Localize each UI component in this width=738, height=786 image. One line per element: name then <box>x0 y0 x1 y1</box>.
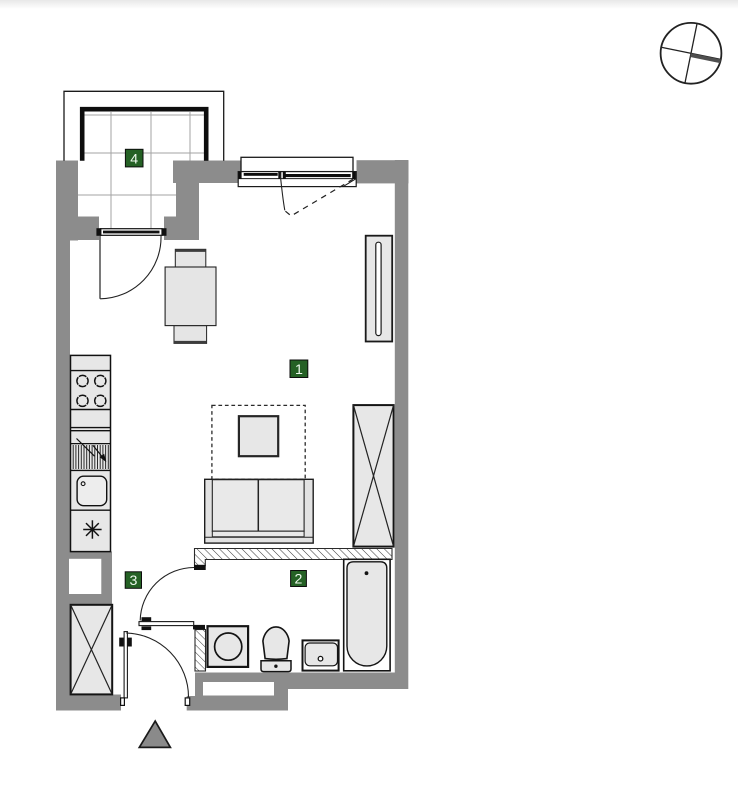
svg-text:3: 3 <box>129 573 137 589</box>
svg-text:1: 1 <box>295 362 303 378</box>
svg-text:2: 2 <box>295 572 303 588</box>
svg-text:4: 4 <box>130 151 138 167</box>
